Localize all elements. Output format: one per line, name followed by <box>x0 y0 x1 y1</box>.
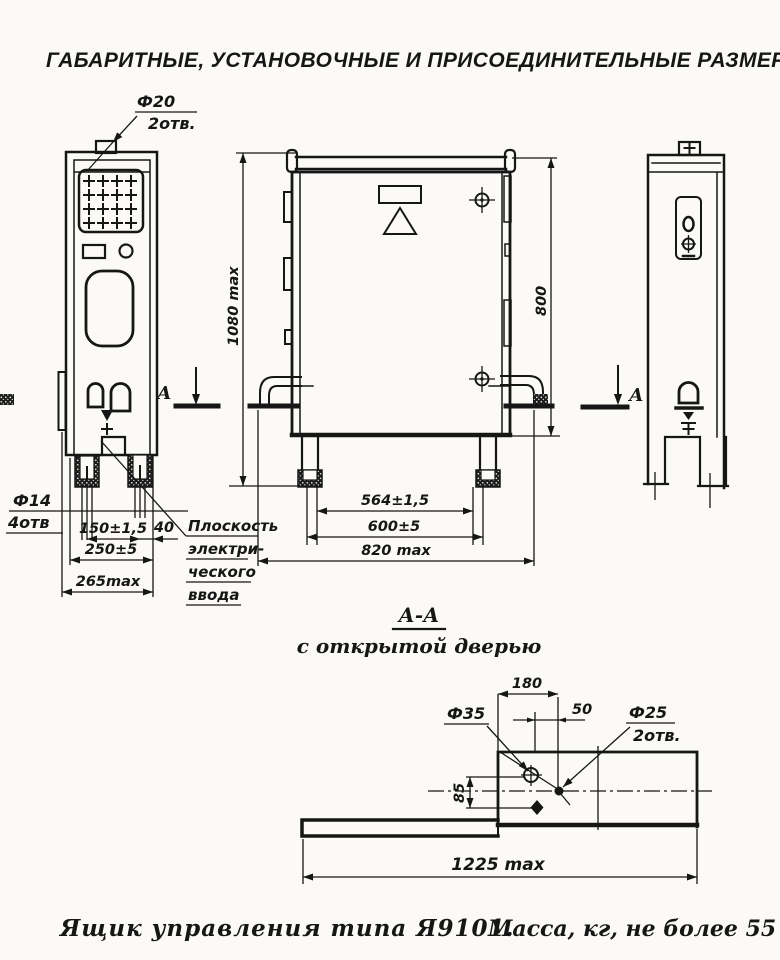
drawing-sheet: ГАБАРИТНЫЕ, УСТАНОВОЧНЫЕ И ПРИСОЕДИНИТЕЛ… <box>0 0 780 960</box>
front-foot-right <box>476 470 500 487</box>
callout-f35: Ф35 <box>444 704 528 771</box>
dim-800: 800 <box>534 286 550 316</box>
plane-note-line1: Плоскость <box>188 517 278 535</box>
hole-bottom-count: 4отв <box>7 513 50 532</box>
down-arrow-icon <box>683 412 694 420</box>
lock-point <box>531 800 544 815</box>
keyhole-target <box>681 235 696 256</box>
dim-265: 265max <box>76 574 141 590</box>
dim-600: 600±5 <box>368 519 421 535</box>
dim-180: 180 <box>512 676 542 692</box>
dim-1080: 1080 max <box>226 266 242 346</box>
side-view-right <box>644 142 728 508</box>
callout-hole-top: Ф20 2отв. <box>88 92 197 170</box>
dim-85: 85 <box>452 783 468 803</box>
hole-top-count: 2отв. <box>148 114 196 133</box>
dim-250: 250±5 <box>85 542 138 558</box>
lock-target-bottom <box>469 366 495 392</box>
section-cut-marker-right: А <box>583 366 644 407</box>
bracket-right <box>489 376 552 406</box>
technical-drawing: ГАБАРИТНЫЕ, УСТАНОВОЧНЫЕ И ПРИСОЕДИНИТЕЛ… <box>0 0 780 960</box>
drawing-title: ГАБАРИТНЫЕ, УСТАНОВОЧНЫЕ И ПРИСОЕДИНИТЕЛ… <box>46 49 780 72</box>
down-arrow-icon <box>101 410 113 421</box>
foot-right <box>128 455 152 487</box>
dims-section-view: 180 50 85 Ф35 Ф25 2отв. 1225 max <box>303 676 697 884</box>
dim-40: 40 <box>153 520 174 536</box>
hole-35-diameter: Ф35 <box>447 704 485 723</box>
section-letter: А <box>155 383 172 404</box>
dim-820: 820 max <box>361 543 431 559</box>
warning-triangle-icon <box>384 208 416 234</box>
terminal-grid <box>84 176 136 228</box>
label-plate <box>379 186 421 203</box>
product-mass: Масса, кг, не более 55 <box>487 916 776 942</box>
hole-bottom-diameter: Ф14 <box>13 491 51 510</box>
section-title: А-А <box>397 603 440 627</box>
section-a-a-header: А-А с открытой дверью <box>297 603 542 658</box>
plane-note-line4: ввода <box>188 586 240 604</box>
hole-25-count: 2отв. <box>633 726 681 745</box>
hole-25-diameter: Ф25 <box>629 703 667 722</box>
hole-top-diameter: Ф20 <box>137 92 175 111</box>
product-name: Ящик управления типа Я9101. <box>58 915 515 942</box>
dim-150: 150±1,5 <box>79 521 147 537</box>
caption: Ящик управления типа Я9101. Масса, кг, н… <box>58 915 776 942</box>
section-subtitle: с открытой дверью <box>297 634 542 658</box>
plane-note-line3: ческого <box>188 563 256 581</box>
foot-left <box>75 456 99 487</box>
section-cut-marker-left: А <box>155 368 218 406</box>
lock-target-top <box>469 187 495 213</box>
front-foot-left <box>298 470 322 487</box>
plane-note-line2: электри- <box>188 540 264 558</box>
dim-50: 50 <box>572 702 592 718</box>
dim-564: 564±1,5 <box>361 493 429 509</box>
section-arrow-icon <box>614 394 622 405</box>
section-arrow-icon <box>192 394 200 405</box>
section-letter: А <box>627 385 644 406</box>
dim-1225: 1225 max <box>451 855 545 875</box>
